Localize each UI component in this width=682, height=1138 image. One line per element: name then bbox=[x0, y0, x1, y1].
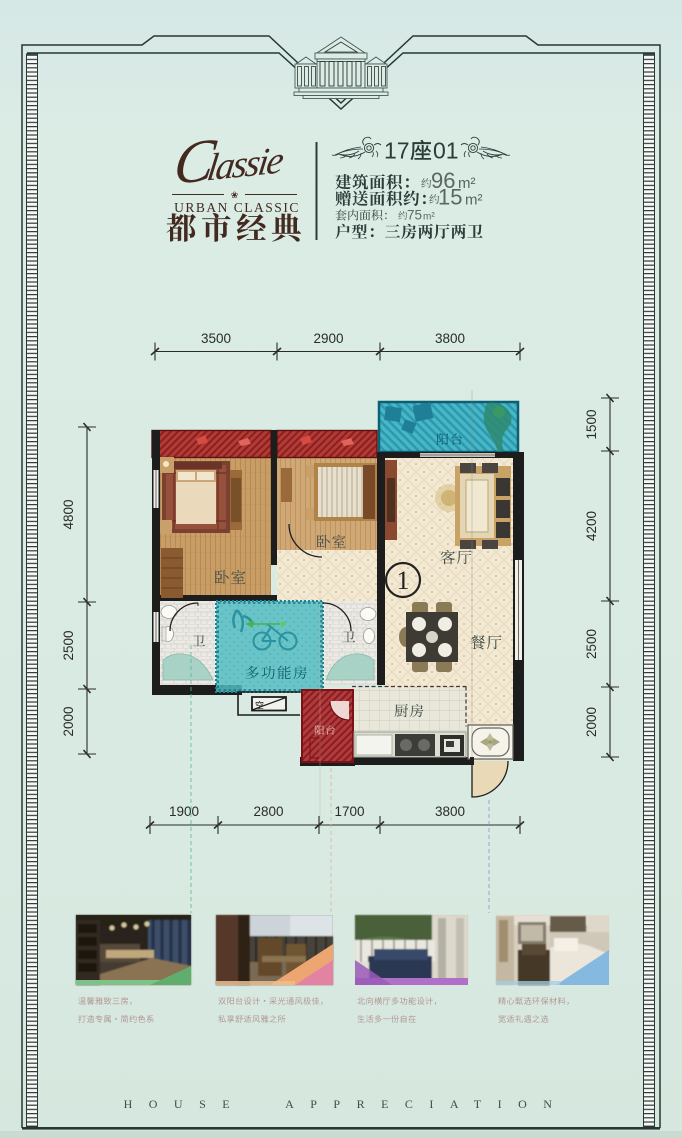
svg-text:15: 15 bbox=[438, 185, 462, 210]
svg-text:1500: 1500 bbox=[584, 409, 599, 439]
svg-text:2500: 2500 bbox=[61, 630, 76, 660]
svg-text:3800: 3800 bbox=[435, 331, 465, 346]
svg-text:m²: m² bbox=[423, 212, 435, 223]
svg-text:HOUSE APPRECIATION: HOUSE APPRECIATION bbox=[124, 1097, 569, 1111]
svg-text:❀: ❀ bbox=[231, 190, 239, 200]
svg-text:17: 17 bbox=[384, 138, 410, 164]
svg-text:4200: 4200 bbox=[584, 511, 599, 541]
svg-text:1: 1 bbox=[397, 566, 410, 595]
svg-text:2900: 2900 bbox=[313, 331, 343, 346]
svg-text:1900: 1900 bbox=[169, 804, 199, 819]
svg-text:URBAN CLASSIC: URBAN CLASSIC bbox=[174, 200, 300, 215]
svg-text:2000: 2000 bbox=[61, 706, 76, 736]
svg-text:75: 75 bbox=[407, 208, 422, 223]
svg-text:3500: 3500 bbox=[201, 331, 231, 346]
svg-text:3800: 3800 bbox=[435, 804, 465, 819]
svg-text:2000: 2000 bbox=[584, 707, 599, 737]
svg-text:4800: 4800 bbox=[61, 499, 76, 529]
svg-text:01: 01 bbox=[433, 138, 459, 164]
svg-text:m²: m² bbox=[465, 192, 483, 209]
svg-text:2500: 2500 bbox=[584, 629, 599, 659]
svg-text:1700: 1700 bbox=[334, 804, 364, 819]
svg-text:2800: 2800 bbox=[253, 804, 283, 819]
